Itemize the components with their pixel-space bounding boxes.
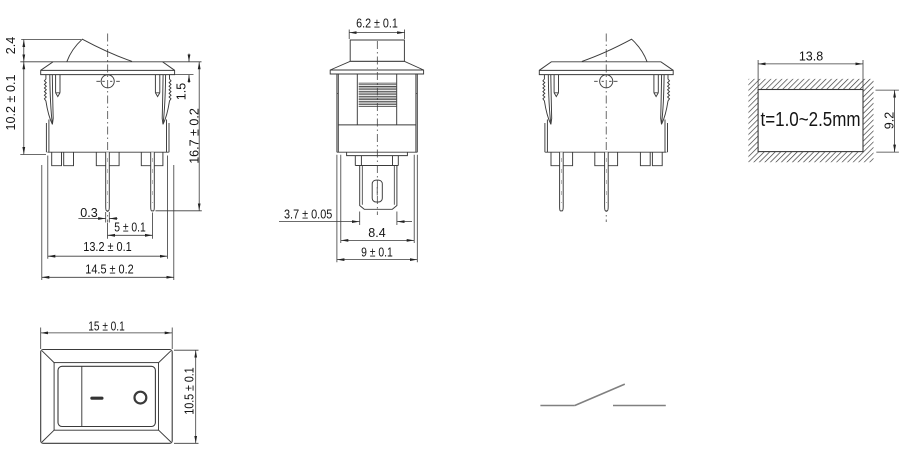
svg-text:6.2 ± 0.1: 6.2 ± 0.1 bbox=[356, 16, 398, 30]
svg-text:9 ± 0.1: 9 ± 0.1 bbox=[361, 245, 393, 259]
svg-text:5 ± 0.1: 5 ± 0.1 bbox=[114, 221, 146, 235]
svg-text:10.5 ± 0.1: 10.5 ± 0.1 bbox=[182, 367, 196, 414]
svg-text:16.7 ± 0.2: 16.7 ± 0.2 bbox=[187, 108, 201, 164]
svg-text:3.7 ± 0.05: 3.7 ± 0.05 bbox=[284, 207, 332, 221]
svg-text:0.3: 0.3 bbox=[80, 206, 97, 220]
svg-text:15 ± 0.1: 15 ± 0.1 bbox=[88, 319, 125, 333]
svg-text:13.8: 13.8 bbox=[799, 50, 823, 64]
svg-text:2.4: 2.4 bbox=[4, 37, 18, 54]
svg-text:t=1.0~2.5mm: t=1.0~2.5mm bbox=[761, 109, 861, 131]
svg-text:9.2: 9.2 bbox=[883, 112, 897, 129]
svg-text:10.2 ± 0.1: 10.2 ± 0.1 bbox=[4, 74, 18, 130]
svg-text:8.4: 8.4 bbox=[368, 226, 385, 240]
svg-text:13.2 ± 0.1: 13.2 ± 0.1 bbox=[83, 240, 131, 254]
svg-text:14.5 ± 0.2: 14.5 ± 0.2 bbox=[85, 262, 133, 276]
svg-text:1.5: 1.5 bbox=[175, 83, 189, 100]
